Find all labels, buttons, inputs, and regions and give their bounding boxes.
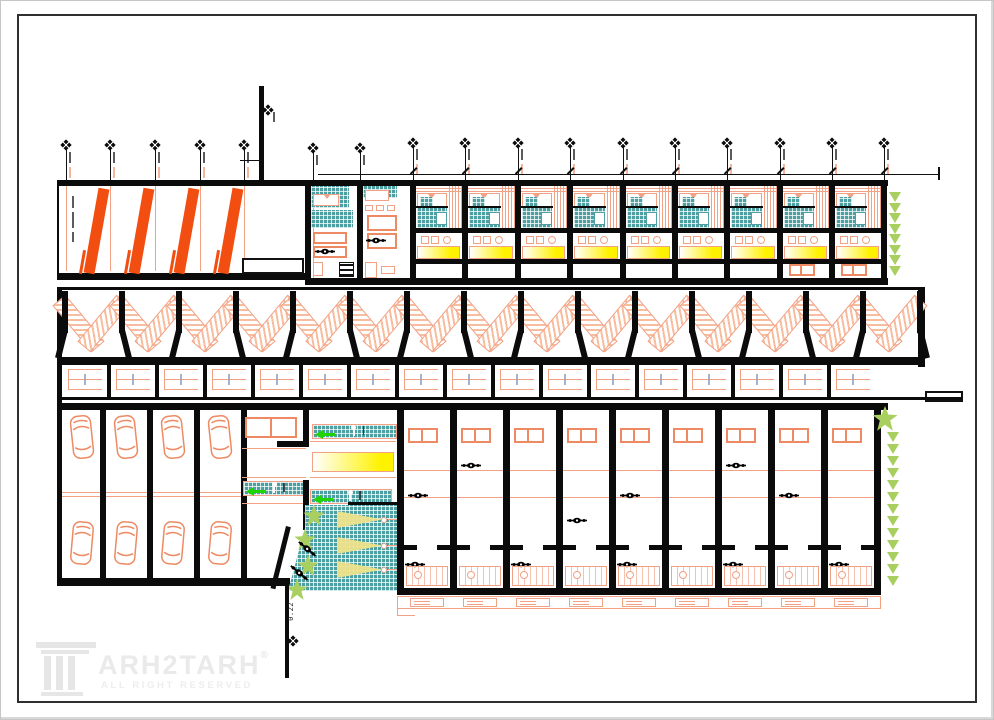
wall-segment (829, 180, 835, 285)
wall-segment (285, 580, 289, 678)
shrub-icon (887, 552, 899, 562)
wall-vhatch (711, 186, 724, 228)
stair-post-angled (689, 329, 702, 359)
wall-segment (490, 545, 503, 550)
wall-segment (683, 365, 687, 397)
window-box (408, 428, 438, 443)
tiny-label-text (273, 112, 275, 122)
wall-segment (861, 545, 874, 550)
elevation-label: 0.22 (287, 602, 295, 621)
tiny-label-text (363, 426, 365, 435)
furniture-box (735, 236, 743, 244)
tiny-label-text (180, 374, 182, 385)
wall-segment (119, 291, 125, 333)
shrub-icon (887, 540, 899, 550)
wall-segment (777, 228, 829, 233)
furniture-box (788, 236, 796, 244)
dim-tick-end (938, 167, 940, 180)
wall-segment (575, 291, 581, 333)
bath-fixture (489, 212, 500, 225)
wall-segment (194, 410, 200, 582)
bench-detail (520, 571, 528, 579)
balcony-seat (841, 264, 867, 276)
tiny-label-text (420, 374, 422, 385)
tiny-label-text (203, 152, 205, 163)
wall-segment (404, 291, 410, 333)
light-cove (522, 246, 565, 259)
stair-post-angled (347, 329, 360, 359)
person-icon (511, 556, 531, 565)
shrub-icon (887, 432, 899, 442)
hairline (397, 470, 874, 471)
wall-segment (462, 228, 515, 233)
wall-segment (57, 578, 290, 586)
tiny-label-text (113, 167, 115, 178)
hairline (727, 147, 728, 183)
drawing-canvas (0, 0, 994, 720)
furniture-box (526, 236, 534, 244)
window-box (726, 428, 756, 443)
wall-segment (515, 259, 567, 264)
tiny-label-text (158, 167, 160, 178)
tiny-label-text (158, 152, 160, 163)
shrub-icon (887, 456, 899, 466)
tiny-label-text (247, 167, 249, 178)
tiny-label-text (564, 374, 566, 385)
wall-segment (724, 180, 730, 285)
furniture-round (705, 236, 713, 244)
tiny-label-text (573, 149, 575, 160)
bath-fixture (594, 212, 605, 225)
plinth-hatch (573, 600, 589, 605)
lobby-furniture (367, 215, 397, 231)
wall-segment (147, 410, 153, 582)
hairline (388, 545, 397, 546)
tiny-label-text (72, 196, 74, 208)
stair-post-angled (461, 329, 474, 359)
wall-segment (689, 291, 695, 333)
car-icon (205, 519, 235, 567)
bench-detail (785, 571, 793, 579)
wall-segment (779, 365, 783, 397)
logo-column-bar (56, 656, 63, 690)
bench-detail (573, 571, 581, 579)
window-divider (633, 428, 635, 443)
wall-segment (649, 545, 662, 550)
balcony-seat (789, 264, 815, 276)
tiny-label-text (468, 149, 470, 160)
furniture-round (653, 236, 661, 244)
bath-fixture (803, 212, 814, 225)
light-cove (469, 246, 513, 259)
window-box (514, 428, 544, 443)
light-cove (836, 246, 879, 259)
car-icon (111, 519, 141, 567)
furniture-box (850, 236, 858, 244)
shrub-icon (887, 444, 899, 454)
wall-segment (724, 228, 777, 233)
wall-segment (155, 365, 159, 397)
plinth-hatch (520, 600, 536, 605)
wall-segment (563, 545, 576, 550)
tiny-label-text (521, 149, 523, 160)
hairline (66, 149, 67, 183)
hairline (623, 147, 624, 183)
wall-segment (669, 545, 682, 550)
furniture-box (473, 236, 481, 244)
shrub-icon (887, 528, 899, 538)
furniture-round (443, 236, 451, 244)
tiny-label-text (783, 149, 785, 160)
light-cove (784, 246, 827, 259)
wall-segment (587, 365, 591, 397)
furniture-round (548, 236, 556, 244)
furniture-box (578, 236, 586, 244)
plinth-hatch (626, 600, 642, 605)
person-icon (405, 556, 425, 565)
lobby-glyph (365, 205, 373, 211)
wall-segment (410, 259, 462, 264)
bench-strip (618, 566, 660, 586)
wall-segment (510, 545, 523, 550)
wall-segment (410, 228, 462, 233)
wall-segment (57, 287, 925, 290)
shrub-icon (887, 576, 899, 586)
hairline (244, 149, 245, 183)
wall-segment (410, 180, 416, 285)
bench-strip (671, 566, 713, 586)
hairline (388, 519, 397, 520)
bath-fixture (855, 212, 866, 225)
wall-segment (808, 545, 821, 550)
window-divider (686, 428, 688, 443)
tiny-label-text (324, 374, 326, 385)
tiny-label-text (69, 167, 71, 178)
furniture-box (840, 236, 848, 244)
tiny-label-text (247, 152, 249, 163)
wall-segment (461, 291, 467, 333)
striped-box (339, 262, 354, 277)
shrub-icon (889, 213, 901, 223)
grid-marker-icon (262, 104, 273, 115)
wall-vhatch (764, 186, 777, 228)
stair-post-angled (233, 329, 246, 359)
car-icon (158, 519, 188, 567)
hairline (242, 448, 306, 449)
wall-segment (233, 291, 239, 333)
hairline (780, 147, 781, 183)
wall-segment (462, 259, 515, 264)
tiny-label-text (852, 374, 854, 385)
bench-strip (777, 566, 819, 586)
tiny-label-text (708, 374, 710, 385)
hairline (318, 174, 940, 175)
wall-segment (290, 291, 296, 333)
stair-post-angled (169, 329, 182, 359)
window-divider (739, 428, 741, 443)
window-divider (845, 428, 847, 443)
wall-segment (57, 403, 62, 586)
person-icon (567, 512, 587, 521)
wall-segment (305, 180, 311, 285)
furniture-box (431, 236, 439, 244)
tiny-label-text (416, 149, 418, 160)
bench-detail (467, 571, 475, 579)
hairline (242, 503, 306, 504)
tiny-label-text (228, 374, 230, 385)
furniture-box (483, 236, 491, 244)
wall-segment (567, 180, 573, 285)
light-cove (417, 246, 460, 259)
lobby-tile (311, 210, 353, 228)
person-icon (461, 457, 481, 466)
wall-segment (632, 291, 638, 333)
plinth-hatch (838, 600, 854, 605)
escalator-rider-head (351, 425, 356, 430)
car-icon (67, 519, 97, 567)
window-box (461, 428, 491, 443)
wall-vhatch (607, 186, 620, 228)
light-cove (731, 246, 775, 259)
hairline (66, 183, 67, 271)
furniture-box (588, 236, 596, 244)
tiny-label-text (72, 232, 74, 242)
ramp-hall-edge (57, 180, 59, 280)
person-icon (620, 487, 640, 496)
window-box (620, 428, 650, 443)
wall-segment (567, 259, 620, 264)
shrub-icon (889, 192, 901, 202)
shrub-icon (887, 564, 899, 574)
bench-detail (732, 571, 740, 579)
balcony-seat-divider (800, 264, 802, 276)
wall-segment (251, 365, 255, 397)
stair-post-angled (119, 329, 132, 359)
furniture-box (641, 236, 649, 244)
bench-strip (512, 566, 554, 586)
window-divider (474, 428, 476, 443)
wall-segment (596, 545, 609, 550)
wall-segment (746, 291, 752, 333)
furniture-round (862, 236, 870, 244)
wall-vhatch (816, 186, 829, 228)
hairline (200, 183, 201, 271)
stair-post-angled (575, 329, 588, 359)
car-icon (158, 413, 189, 461)
shrub-icon (887, 468, 899, 478)
lobby-bed (365, 190, 389, 201)
hairline (242, 477, 306, 478)
furniture-box (683, 236, 691, 244)
light-cove (627, 246, 670, 259)
plinth-hatch (414, 600, 430, 605)
wall-segment (518, 291, 524, 333)
tiny-label-text (626, 149, 628, 160)
tiny-label-text (203, 167, 205, 178)
window-box (832, 428, 862, 443)
person-icon (723, 556, 743, 565)
wall-segment (803, 291, 809, 333)
hairline (200, 149, 201, 183)
hairline (518, 147, 519, 183)
logo-column-bar (41, 692, 83, 696)
wall-segment (860, 291, 866, 333)
furniture-round (757, 236, 765, 244)
wall-segment (176, 291, 182, 333)
wall-segment (829, 228, 881, 233)
wall-segment (672, 228, 724, 233)
wall-notch (242, 258, 304, 274)
plinth-hatch (467, 600, 483, 605)
logo-tagline: ALL RIGHT RESERVED (101, 680, 253, 691)
wall-segment (515, 228, 567, 233)
stair-post-angled (397, 329, 410, 359)
tiny-label-text (468, 374, 470, 385)
wall-segment (299, 365, 303, 397)
wall-segment (443, 365, 447, 397)
wall-segment (62, 291, 68, 333)
wall-vhatch (554, 186, 567, 228)
wall-segment (437, 545, 450, 550)
wall-segment (620, 228, 672, 233)
bench-detail (679, 571, 687, 579)
bench-detail (626, 571, 634, 579)
wall-segment (672, 259, 724, 264)
wall-segment (775, 545, 788, 550)
hairline (388, 569, 397, 570)
hairline (313, 152, 314, 183)
tiny-label-text (835, 149, 837, 160)
lobby-shelf (313, 262, 323, 276)
hairline (310, 441, 396, 442)
shrub-icon (889, 266, 901, 276)
wall-segment (768, 410, 775, 591)
direction-arrow-icon (313, 491, 333, 500)
window-divider (421, 428, 423, 443)
furniture-box (798, 236, 806, 244)
furniture-box (693, 236, 701, 244)
hairline (675, 147, 676, 183)
wall-segment (347, 365, 351, 397)
car-icon (67, 413, 98, 461)
wall-segment (722, 545, 735, 550)
furniture-round (810, 236, 818, 244)
wall-vhatch (449, 186, 462, 228)
furniture-box (745, 236, 753, 244)
person-icon (726, 457, 746, 466)
furniture-round (495, 236, 503, 244)
logo-brand: ARH2TARH® (98, 650, 270, 681)
window-divider (580, 428, 582, 443)
tiny-label-text (72, 212, 74, 228)
light-cove (312, 452, 394, 472)
tiny-label-text (660, 374, 662, 385)
furniture-box (421, 236, 429, 244)
bench-detail (838, 571, 846, 579)
wall-segment (828, 545, 841, 550)
wall-segment (357, 180, 363, 285)
wall-segment (397, 588, 881, 595)
escalator-rider-head (348, 490, 353, 495)
wall-segment (715, 410, 722, 591)
stair-post-angled (739, 329, 752, 359)
bath-fixture (751, 212, 762, 225)
tiny-label-text (276, 374, 278, 385)
car-lift-divider (270, 417, 272, 438)
logo: ARH2TARH® ALL RIGHT RESERVED (36, 640, 266, 700)
hairline (397, 615, 415, 616)
wall-segment (777, 180, 783, 285)
wall-segment (305, 278, 888, 285)
hairline (570, 147, 571, 183)
wall-segment (731, 365, 735, 397)
wall-segment (107, 365, 111, 397)
wall-vhatch (868, 186, 881, 228)
logo-brand-text: ARH2TARH (98, 650, 261, 680)
wall-vhatch (502, 186, 515, 228)
shrub-icon (887, 504, 899, 514)
wall-segment (347, 291, 353, 333)
person-icon (366, 232, 386, 241)
wall-segment (515, 180, 521, 285)
wall-segment (57, 397, 962, 400)
bath-fixture (436, 212, 447, 225)
wall-vhatch (659, 186, 672, 228)
window-divider (792, 428, 794, 443)
tiny-label-text (730, 149, 732, 160)
wall-segment (620, 180, 626, 285)
wall-segment (724, 259, 777, 264)
stair-post-angled (511, 329, 524, 359)
wall-segment (635, 365, 639, 397)
wall-segment (397, 410, 404, 591)
wall-segment (303, 410, 309, 447)
drawing-sheet: ARH2TARH® ALL RIGHT RESERVED 0.22 (0, 0, 994, 720)
person-icon (408, 487, 428, 496)
wall-segment (203, 365, 207, 397)
escalator-rider-head (272, 482, 277, 487)
bench-strip (830, 566, 872, 586)
wall-segment (404, 545, 417, 550)
wall-segment (450, 410, 457, 591)
logo-column-icon (36, 642, 98, 698)
ramp-slope-bar (84, 188, 110, 275)
tiny-label-text (887, 149, 889, 160)
tiny-label-text (283, 483, 285, 492)
wall-segment (259, 86, 264, 182)
tiny-label-text (804, 374, 806, 385)
tiny-label-text (69, 152, 71, 163)
bath-fixture (646, 212, 657, 225)
wall-segment (567, 228, 620, 233)
logo-registered-mark: ® (261, 650, 270, 661)
stair-post-angled (283, 329, 296, 359)
direction-arrow-icon (246, 483, 266, 492)
wall-segment (57, 357, 925, 365)
shrub-icon (889, 234, 901, 244)
tiny-label-text (132, 374, 134, 385)
stair-post-angled (625, 329, 638, 359)
hairline (360, 152, 361, 183)
wall-segment (881, 180, 887, 285)
tiny-label-text (363, 155, 365, 165)
bench-strip (459, 566, 501, 586)
bath-fixture (541, 212, 552, 225)
hairline (832, 147, 833, 183)
ramp-slope-bar (174, 188, 200, 275)
person-icon (779, 487, 799, 496)
wall-segment (874, 410, 881, 591)
